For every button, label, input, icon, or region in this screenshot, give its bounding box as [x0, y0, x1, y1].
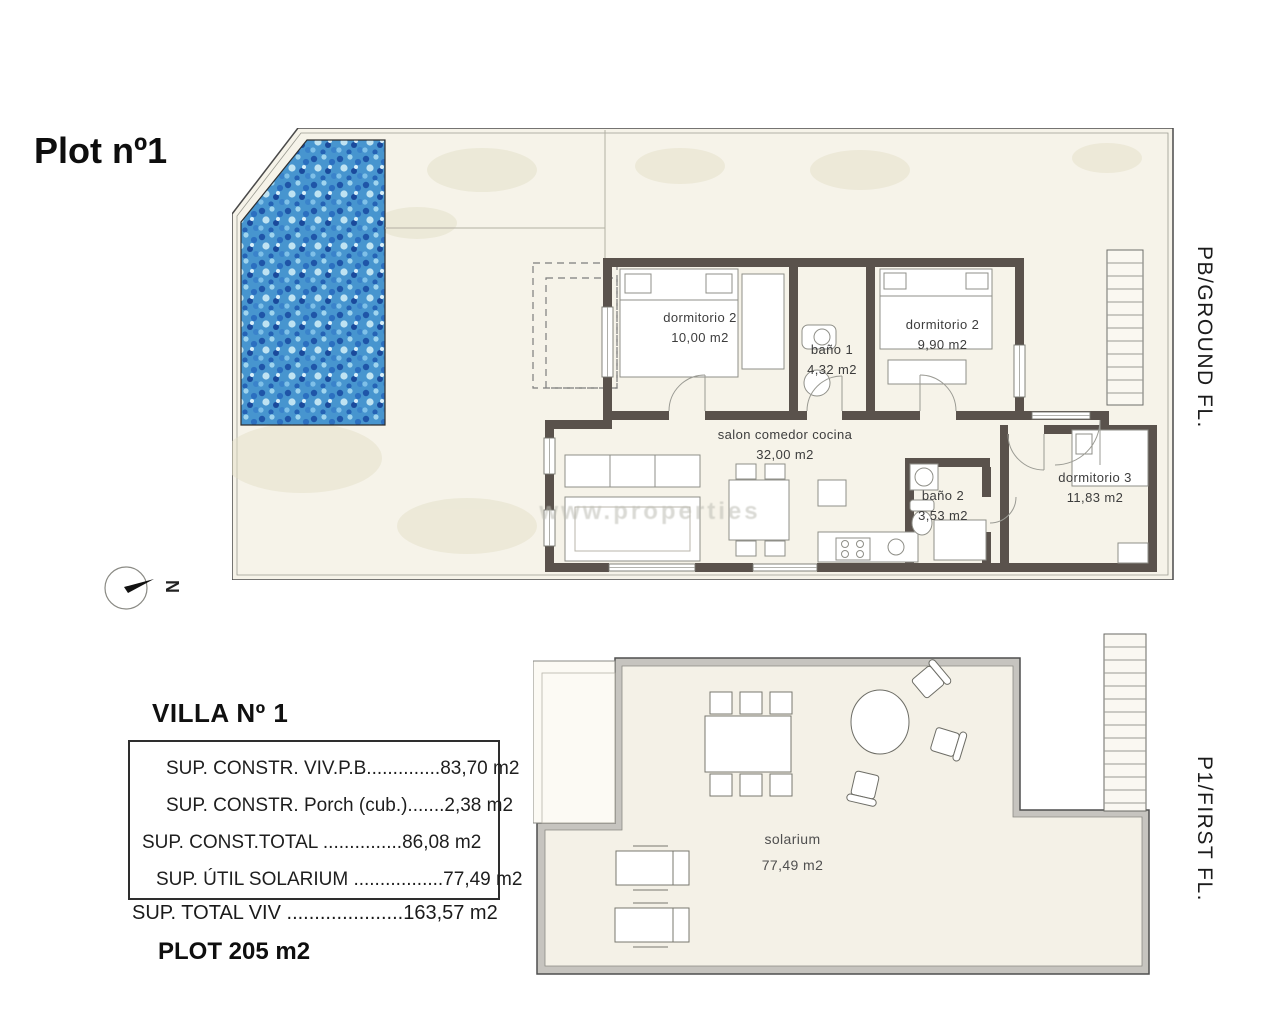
room-label-bano1: baño 1 4,32 m2 — [790, 340, 874, 380]
summary-row: SUP. CONSTR. VIV.P.B..............83,70 … — [130, 750, 498, 787]
floorplan-page: { "page": { "title": "Plot nº1" }, "floo… — [0, 0, 1280, 1024]
page-title: Plot nº1 — [34, 130, 167, 172]
villa-title: VILLA Nº 1 — [152, 698, 288, 729]
first-floor-plan — [533, 630, 1153, 980]
summary-row: SUP. ÚTIL SOLARIUM .................77,4… — [130, 861, 498, 898]
north-label: N — [162, 580, 182, 593]
room-label-bano2: baño 2 3,53 m2 — [898, 486, 988, 526]
room-label-dormitorio2-left: dormitorio 2 10,00 m2 — [630, 308, 770, 348]
plot-size: PLOT 205 m2 — [158, 938, 310, 966]
room-label-salon: salon comedor cocina 32,00 m2 — [675, 425, 895, 465]
room-label-solarium: solarium 77,49 m2 — [735, 826, 850, 878]
room-label-dormitorio3: dormitorio 3 11,83 m2 — [1035, 468, 1155, 508]
room-label-dormitorio2-right: dormitorio 2 9,90 m2 — [875, 315, 1010, 355]
area-summary-box: SUP. CONSTR. VIV.P.B..............83,70 … — [128, 740, 500, 900]
first-floor-side-label: P1/FIRST FL. — [1192, 756, 1216, 902]
summary-row: SUP. CONST.TOTAL ...............86,08 m2 — [130, 824, 498, 861]
watermark: www.properties — [478, 498, 822, 526]
north-arrow-icon: N — [96, 556, 186, 620]
first-floor-stairs — [1104, 634, 1146, 811]
ground-stairs — [1107, 250, 1143, 405]
summary-row: SUP. CONSTR. Porch (cub.).......2,38 m2 — [130, 787, 498, 824]
total-row: SUP. TOTAL VIV .....................163,… — [132, 902, 498, 925]
dining-set — [705, 692, 792, 796]
roof-void — [533, 661, 615, 823]
ground-floor-side-label: PB/GROUND FL. — [1192, 246, 1216, 429]
